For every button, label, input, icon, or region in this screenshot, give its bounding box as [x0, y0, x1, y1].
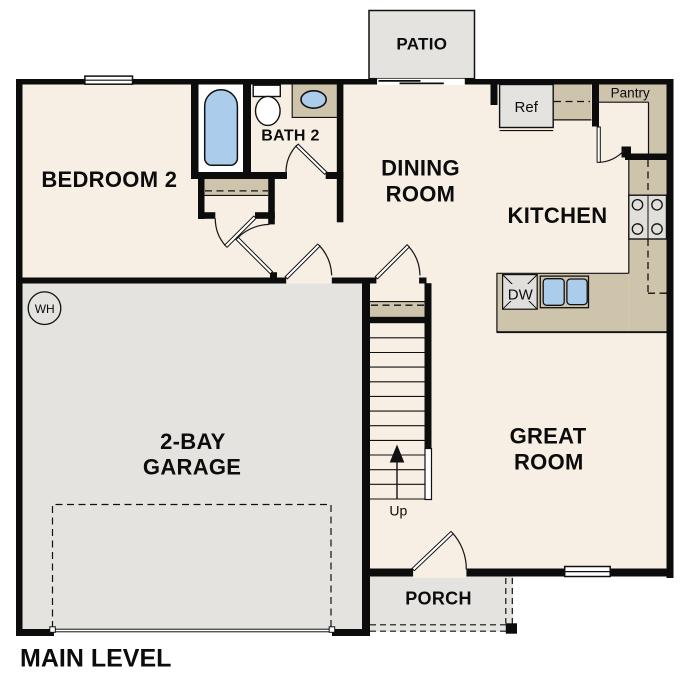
svg-text:Pantry: Pantry	[611, 86, 650, 101]
svg-text:ROOM: ROOM	[386, 182, 456, 207]
svg-text:ROOM: ROOM	[514, 449, 584, 474]
svg-text:KITCHEN: KITCHEN	[508, 203, 608, 228]
svg-text:Ref: Ref	[515, 99, 539, 116]
svg-text:DINING: DINING	[381, 155, 460, 180]
svg-text:DW: DW	[508, 287, 534, 304]
svg-text:PORCH: PORCH	[405, 588, 472, 608]
svg-text:BEDROOM 2: BEDROOM 2	[41, 167, 177, 192]
svg-text:BATH 2: BATH 2	[261, 128, 319, 145]
svg-text:GARAGE: GARAGE	[143, 455, 241, 480]
svg-text:GREAT: GREAT	[510, 423, 587, 448]
svg-text:PATIO: PATIO	[396, 35, 447, 54]
svg-text:Up: Up	[389, 503, 407, 519]
svg-text:2-BAY: 2-BAY	[160, 429, 226, 454]
svg-text:WH: WH	[35, 302, 55, 316]
svg-text:MAIN LEVEL: MAIN LEVEL	[20, 644, 171, 672]
